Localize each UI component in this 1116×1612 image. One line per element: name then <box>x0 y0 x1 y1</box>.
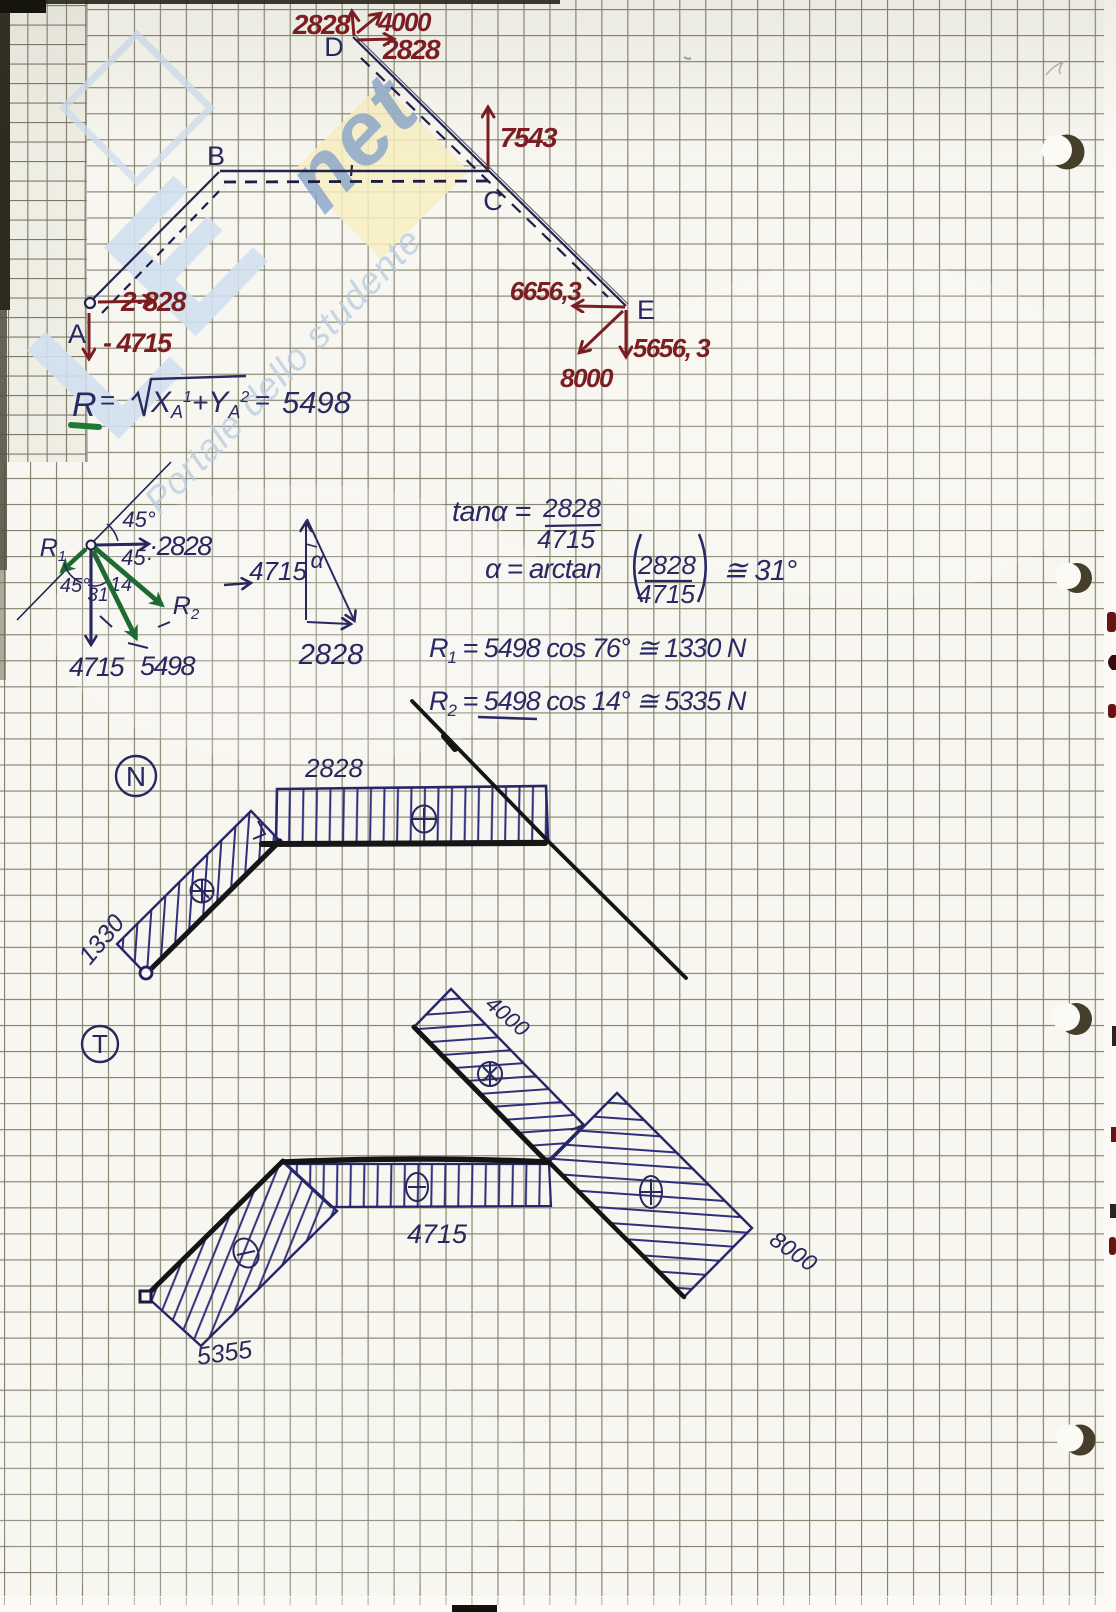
svg-text:R: R <box>72 386 97 424</box>
svg-text:4715: 4715 <box>637 579 695 609</box>
svg-text:=: = <box>100 385 115 415</box>
svg-text:5498: 5498 <box>140 651 196 681</box>
svg-text:T: T <box>92 1029 108 1059</box>
svg-text:E: E <box>637 295 655 325</box>
svg-text:A: A <box>68 319 86 349</box>
svg-text:31: 31 <box>87 585 108 606</box>
svg-text:2828: 2828 <box>637 550 696 580</box>
svg-text:4715: 4715 <box>249 556 307 586</box>
svg-text:N: N <box>126 761 146 792</box>
svg-text:2828: 2828 <box>382 34 441 65</box>
svg-text:≅ 31°: ≅ 31° <box>723 555 797 587</box>
svg-text:R2 = 5498 cos 14° ≅ 5335 N: R2 = 5498 cos 14° ≅ 5335 N <box>429 686 747 720</box>
svg-text:8000: 8000 <box>560 363 614 393</box>
svg-text:2·828: 2·828 <box>120 286 187 317</box>
svg-text:tanα =: tanα = <box>452 496 531 528</box>
svg-text:5656, 3: 5656, 3 <box>633 333 711 363</box>
svg-text:C: C <box>483 186 503 216</box>
svg-text:4715: 4715 <box>69 652 126 682</box>
svg-text:4000: 4000 <box>377 7 432 37</box>
svg-text:45°: 45° <box>122 507 155 532</box>
svg-text:2828: 2828 <box>542 493 601 523</box>
svg-text:5498: 5498 <box>282 385 352 420</box>
svg-text:·2828: ·2828 <box>149 531 212 561</box>
svg-text:- 4715: - 4715 <box>103 328 173 358</box>
svg-text:6656,3: 6656,3 <box>510 276 583 306</box>
svg-text:2828: 2828 <box>292 9 351 40</box>
svg-text:α = arctan: α = arctan <box>485 553 601 584</box>
svg-text:7543: 7543 <box>500 122 558 153</box>
svg-text:R1 = 5498 cos 76° ≅ 1330 N: R1 = 5498 cos 76° ≅ 1330 N <box>429 633 747 667</box>
svg-text:=: = <box>255 385 270 415</box>
svg-text:45·: 45· <box>121 545 153 570</box>
svg-text:B: B <box>207 141 225 171</box>
svg-text:α: α <box>310 547 324 573</box>
svg-text:2828: 2828 <box>304 753 363 783</box>
svg-text:2828: 2828 <box>298 639 364 671</box>
svg-text:4715: 4715 <box>407 1219 468 1249</box>
svg-text:4715: 4715 <box>537 524 595 554</box>
